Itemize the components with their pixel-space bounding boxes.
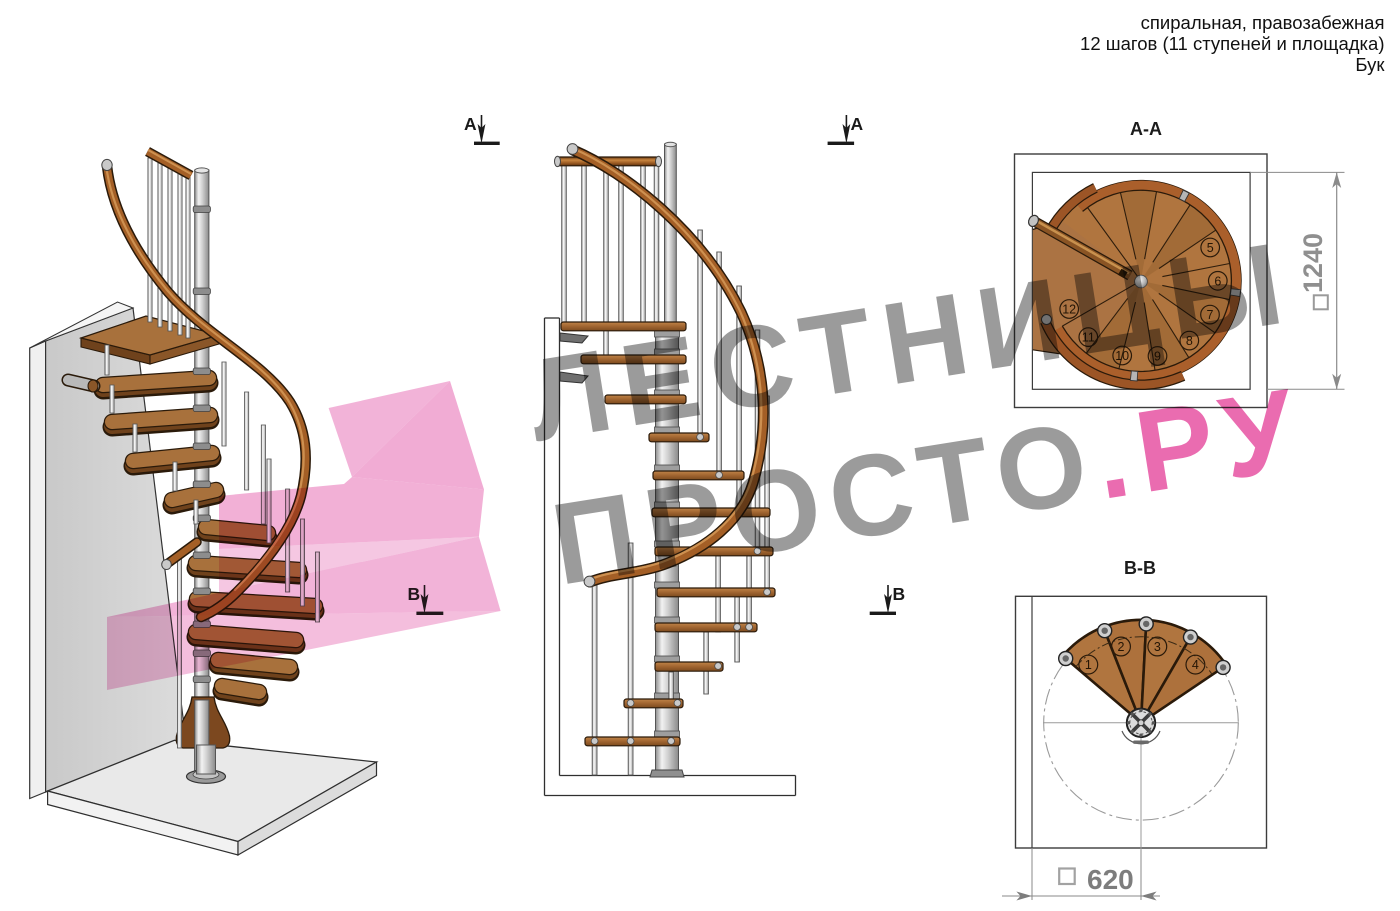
- svg-text:1: 1: [1085, 658, 1092, 672]
- svg-text:4: 4: [1192, 658, 1199, 672]
- svg-text:спиральная, правозабежная: спиральная, правозабежная: [1141, 12, 1385, 33]
- svg-text:2: 2: [1118, 640, 1125, 654]
- svg-text:А-А: А-А: [1130, 119, 1162, 139]
- svg-text:Бук: Бук: [1355, 54, 1385, 75]
- svg-text:В-В: В-В: [1124, 558, 1156, 578]
- svg-text:620: 620: [1087, 864, 1134, 895]
- svg-text:В: В: [893, 584, 906, 604]
- svg-text:А: А: [851, 114, 864, 134]
- svg-text:А: А: [464, 114, 477, 134]
- svg-text:12 шагов (11 ступеней и площад: 12 шагов (11 ступеней и площадка): [1080, 33, 1384, 54]
- svg-text:3: 3: [1154, 640, 1161, 654]
- svg-text:1240: 1240: [1298, 233, 1328, 293]
